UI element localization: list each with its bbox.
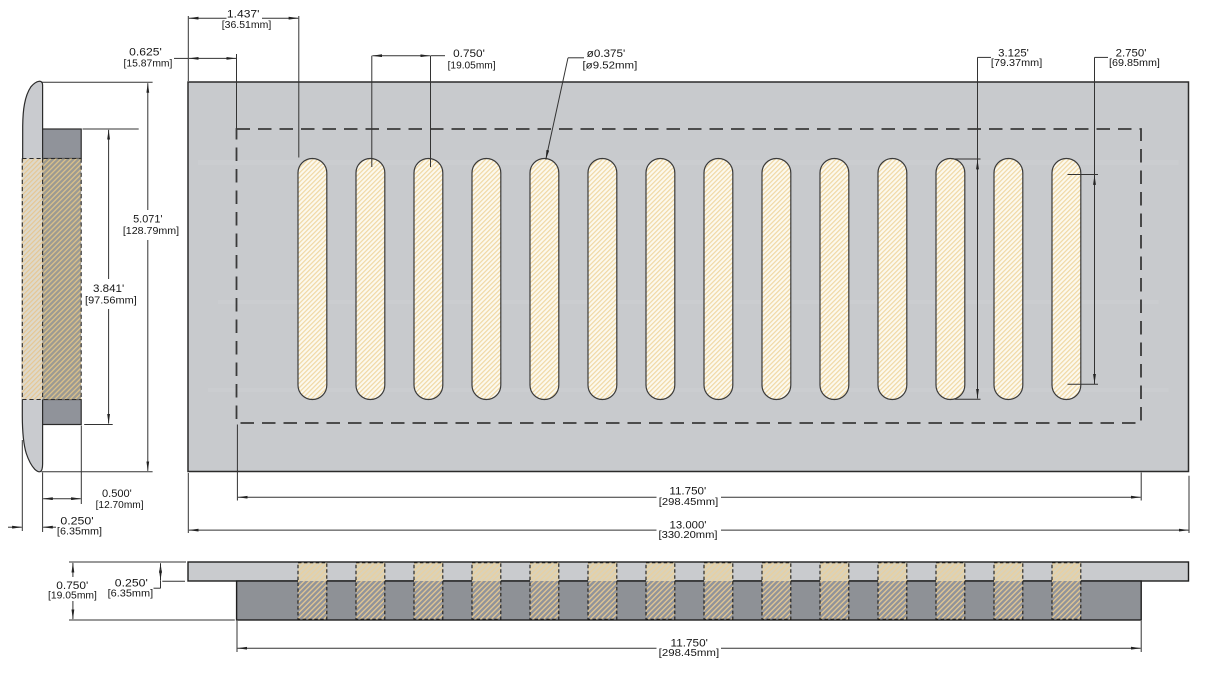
svg-text:[6.35mm]: [6.35mm]: [108, 588, 154, 599]
svg-text:[6.35mm]: [6.35mm]: [57, 527, 102, 538]
svg-text:ø0.375': ø0.375': [587, 48, 626, 60]
svg-text:[298.45mm]: [298.45mm]: [659, 497, 719, 508]
svg-text:1.437': 1.437': [227, 8, 260, 20]
svg-text:[330.20mm]: [330.20mm]: [659, 530, 718, 541]
svg-text:[97.56mm]: [97.56mm]: [85, 295, 137, 306]
svg-text:0.500': 0.500': [102, 488, 132, 500]
svg-text:[19.05mm]: [19.05mm]: [48, 591, 97, 602]
svg-text:11.750': 11.750': [669, 486, 706, 498]
svg-text:[15.87mm]: [15.87mm]: [124, 59, 173, 70]
svg-text:5.071': 5.071': [133, 214, 162, 226]
svg-text:[36.51mm]: [36.51mm]: [222, 20, 272, 31]
svg-text:3.841': 3.841': [93, 283, 124, 295]
svg-text:0.625': 0.625': [129, 47, 162, 59]
svg-text:0.750': 0.750': [453, 48, 485, 60]
svg-text:[69.85mm]: [69.85mm]: [1109, 58, 1160, 69]
svg-text:[12.70mm]: [12.70mm]: [96, 500, 144, 511]
svg-text:[298.45mm]: [298.45mm]: [659, 648, 720, 659]
svg-text:[128.79mm]: [128.79mm]: [123, 226, 180, 237]
svg-text:[ø9.52mm]: [ø9.52mm]: [583, 61, 638, 72]
svg-text:[79.37mm]: [79.37mm]: [991, 58, 1043, 69]
svg-text:[19.05mm]: [19.05mm]: [448, 60, 496, 71]
